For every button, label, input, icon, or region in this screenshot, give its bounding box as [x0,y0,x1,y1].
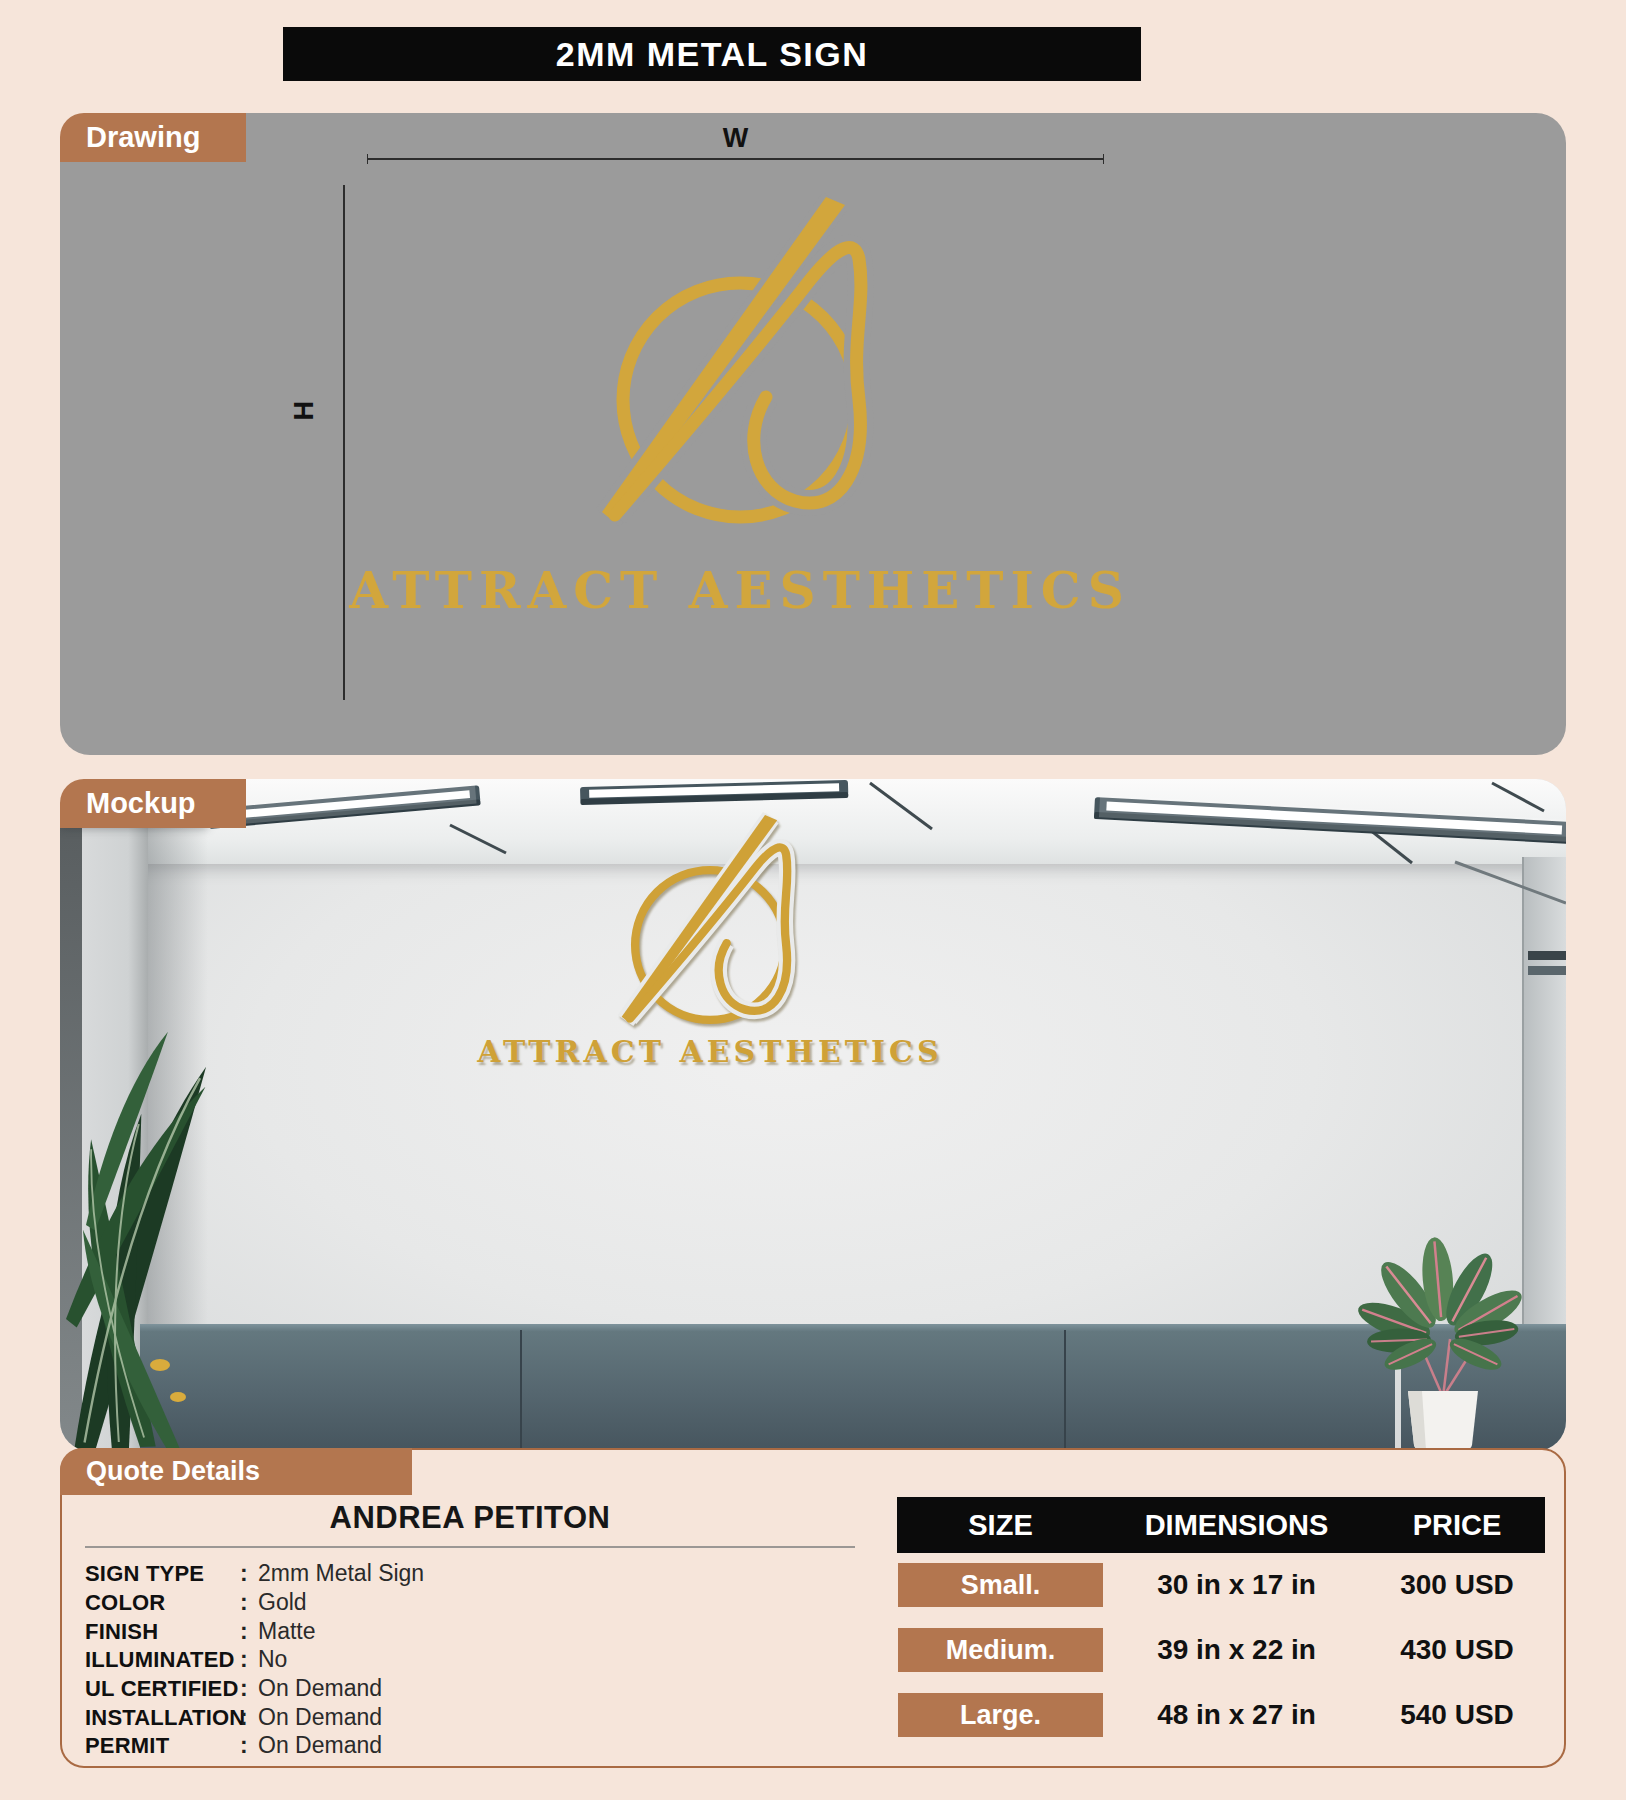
customer-name: ANDREA PETITON [85,1500,855,1536]
dimensions-value: 48 in x 27 in [1104,1699,1369,1731]
detail-value: On Demand [258,1675,382,1702]
size-column-header: SIZE [897,1509,1104,1542]
detail-label: ILLUMINATED [85,1647,240,1673]
size-badge: Medium. [898,1628,1103,1672]
mockup-scene-art [60,779,1566,1451]
detail-separator: : [240,1675,258,1702]
dimensions-column-header: DIMENSIONS [1104,1509,1369,1542]
quote-document: 2MM METAL SIGN W H ATTRACT AESTHETICS Dr… [0,0,1626,1800]
detail-label: FINISH [85,1619,240,1645]
mockup-tab-label: Mockup [86,787,196,820]
quote-tab-label: Quote Details [86,1456,260,1487]
size-badge: Small. [898,1563,1103,1607]
detail-label: PERMIT [85,1733,240,1759]
detail-separator: : [240,1732,258,1759]
right-plant [1354,1236,1528,1450]
quote-detail-row: FINISH : Matte [85,1617,725,1646]
detail-label: SIGN TYPE [85,1561,240,1587]
price-value: 300 USD [1369,1569,1545,1601]
size-badge: Large. [898,1693,1103,1737]
pricing-row-small: Small. 30 in x 17 in 300 USD [897,1563,1545,1607]
detail-label: UL CERTIFIED [85,1676,240,1702]
quote-section-tab: Quote Details [60,1448,412,1495]
detail-separator: : [240,1704,258,1731]
drawing-section-tab: Drawing [60,113,246,162]
quote-detail-row: COLOR : Gold [85,1588,725,1617]
detail-value: On Demand [258,1732,382,1759]
quote-detail-row: UL CERTIFIED : On Demand [85,1674,725,1703]
detail-label: COLOR [85,1590,240,1616]
quote-detail-row: ILLUMINATED : No [85,1645,725,1674]
dimensions-value: 30 in x 17 in [1104,1569,1369,1601]
drawing-tab-label: Drawing [86,121,200,154]
brand-logo-mockup [622,815,788,1022]
price-column-header: PRICE [1369,1509,1545,1542]
document-title: 2MM METAL SIGN [556,35,869,74]
mockup-section-tab: Mockup [60,779,246,828]
detail-value: On Demand [258,1704,382,1731]
detail-value: 2mm Metal Sign [258,1560,424,1587]
brand-wordmark-mockup: ATTRACT AESTHETICS [440,1034,980,1069]
document-title-bar: 2MM METAL SIGN [283,27,1141,81]
price-value: 430 USD [1369,1634,1545,1666]
drawing-panel: W H ATTRACT AESTHETICS [60,113,1566,755]
detail-value: No [258,1646,287,1673]
detail-value: Gold [258,1589,307,1616]
detail-separator: : [240,1646,258,1673]
quote-detail-row: SIGN TYPE : 2mm Metal Sign [85,1559,725,1588]
quote-detail-row: PERMIT : On Demand [85,1731,725,1760]
mockup-panel: ATTRACT AESTHETICS [60,779,1566,1451]
detail-label: INSTALLATION [85,1705,240,1731]
pricing-row-medium: Medium. 39 in x 22 in 430 USD [897,1628,1545,1672]
quote-detail-row: INSTALLATION : On Demand [85,1703,725,1732]
pricing-table-header: SIZE DIMENSIONS PRICE [897,1497,1545,1553]
pricing-row-large: Large. 48 in x 27 in 540 USD [897,1693,1545,1737]
price-value: 540 USD [1369,1699,1545,1731]
left-plant [60,1024,214,1451]
detail-separator: : [240,1560,258,1587]
brand-wordmark-drawing: ATTRACT AESTHETICS [340,561,1140,620]
dimensions-value: 39 in x 22 in [1104,1634,1369,1666]
detail-value: Matte [258,1618,316,1645]
partition-details [1455,862,1566,975]
detail-separator: : [240,1589,258,1616]
detail-separator: : [240,1618,258,1645]
name-divider [85,1546,855,1548]
ceiling-light-fixtures [208,780,1566,844]
brand-logo-drawing [60,113,1566,755]
